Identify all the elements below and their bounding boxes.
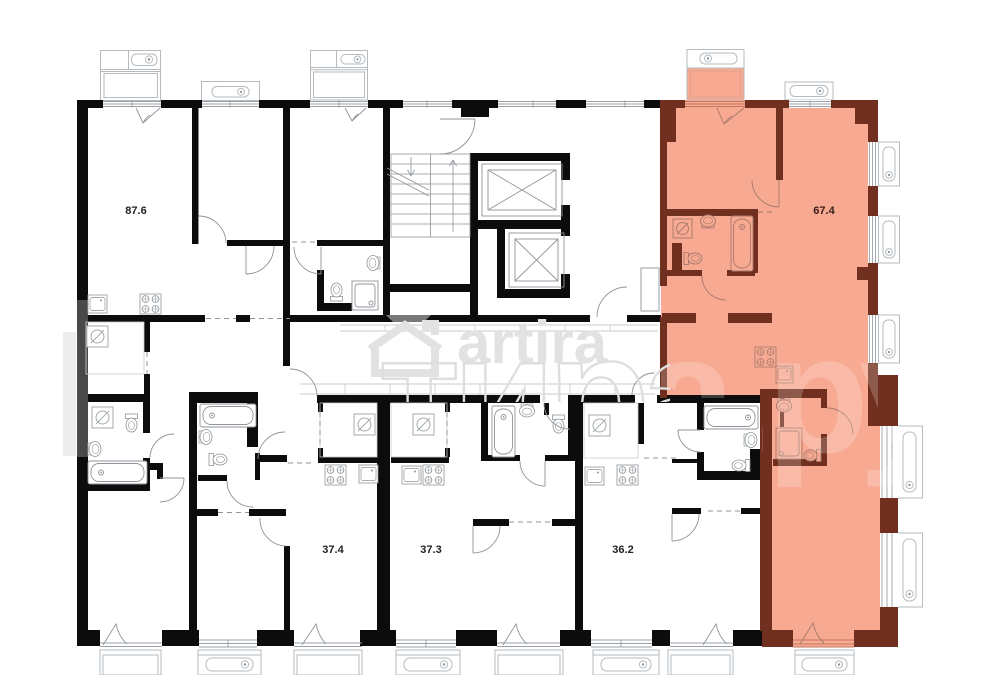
svg-text:67.4: 67.4 xyxy=(813,205,835,217)
svg-text:87.6: 87.6 xyxy=(125,205,146,217)
svg-text:37.4: 37.4 xyxy=(322,544,344,556)
svg-text:37.3: 37.3 xyxy=(420,544,441,556)
svg-text:36.2: 36.2 xyxy=(612,544,633,556)
